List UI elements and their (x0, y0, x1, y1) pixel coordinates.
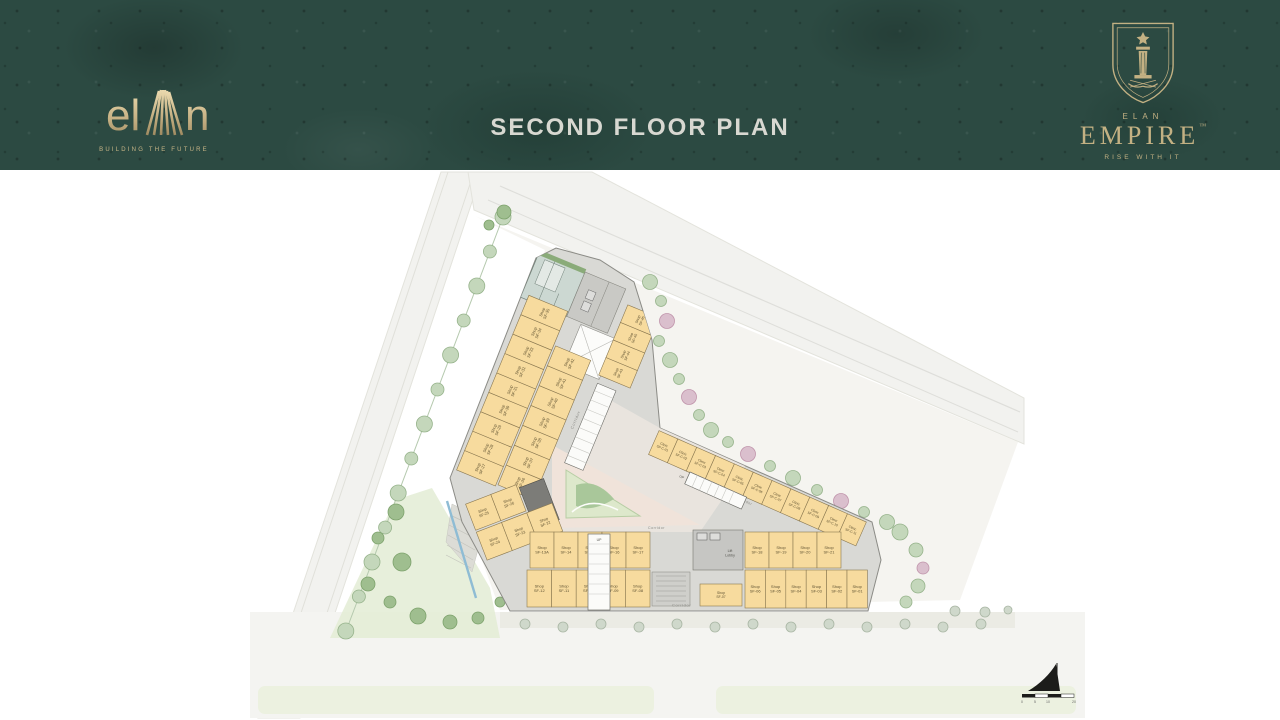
svg-text:ShopSF-02: ShopSF-02 (831, 584, 843, 594)
elan-tagline: BUILDING THE FUTURE (84, 147, 224, 153)
tree-icon (416, 416, 432, 432)
empire-eyebrow: ELAN (1068, 112, 1218, 121)
escalator: UP (588, 534, 610, 610)
lift-lobby-label: Lobby (725, 554, 735, 558)
tree-icon (372, 532, 384, 544)
tree-icon (710, 622, 720, 632)
svg-text:ShopSF-03: ShopSF-03 (811, 584, 823, 594)
tree-icon (900, 619, 910, 629)
tree-icon (980, 607, 990, 617)
shop-unit: ShopSF-19 (769, 532, 793, 568)
tree-icon (976, 619, 986, 629)
svg-text:ShopSF-14: ShopSF-14 (561, 545, 573, 555)
tree-icon (682, 390, 697, 405)
shop-unit: ShopSF-03 (806, 570, 826, 608)
shop-unit: ShopSF-06 (745, 570, 765, 608)
tree-icon (338, 623, 354, 639)
svg-text:ShopSF-06: ShopSF-06 (750, 584, 762, 594)
svg-text:ShopSF-12: ShopSF-12 (534, 584, 546, 594)
tree-icon (786, 622, 796, 632)
svg-text:ShopSF-17: ShopSF-17 (633, 545, 645, 555)
presentation-slide: el n BUILDING THE FUTURE SECOND FLOOR PL… (0, 0, 1280, 720)
tree-icon (859, 507, 870, 518)
tree-icon (892, 524, 908, 540)
corridor-label: Corridor (648, 526, 665, 530)
tree-icon (457, 314, 470, 327)
shop-unit: ShopSF-21 (817, 532, 841, 568)
svg-text:ShopSF-08: ShopSF-08 (632, 584, 644, 594)
tree-icon (390, 485, 406, 501)
svg-text:ShopSF-19: ShopSF-19 (776, 545, 788, 555)
tree-icon (812, 485, 823, 496)
tree-icon (741, 447, 756, 462)
tree-icon (643, 275, 658, 290)
tree-icon (765, 461, 776, 472)
svg-text:ShopSF-18: ShopSF-18 (752, 545, 764, 555)
tree-icon (704, 423, 719, 438)
lift-lobby-label: Lift (728, 549, 733, 553)
tree-icon (520, 619, 530, 629)
elan-empire-logo: ELAN EMPIRE™ RISE WITH IT (1068, 20, 1218, 161)
tree-icon (880, 515, 895, 530)
svg-text:ShopSF-05: ShopSF-05 (770, 584, 782, 594)
shop-unit: ShopSF-11 (552, 570, 577, 607)
tree-icon (472, 612, 484, 624)
tree-icon (443, 615, 457, 629)
tree-icon (674, 374, 685, 385)
tree-icon (384, 596, 396, 608)
tree-icon (405, 452, 418, 465)
tree-icon (656, 296, 667, 307)
shop-unit: ShopSF-12 (527, 570, 552, 607)
tree-icon (824, 619, 834, 629)
tree-icon (654, 336, 665, 347)
tree-icon (497, 205, 511, 219)
shop-unit: ShopSF-01 (847, 570, 867, 608)
tree-icon (786, 471, 801, 486)
floor-plan-area: Corridor ShopSF-27ShopSF-28ShopSF-29Shop… (0, 170, 1280, 720)
tree-icon (410, 608, 426, 624)
svg-text:ShopSF-20: ShopSF-20 (800, 545, 812, 555)
tree-icon (364, 554, 380, 570)
empire-crest-icon (1104, 20, 1182, 106)
floor-plan-canvas: Corridor ShopSF-27ShopSF-28ShopSF-29Shop… (0, 170, 1280, 720)
verge-strip (258, 686, 654, 714)
tree-icon (484, 220, 494, 230)
shop-unit: ShopSF-02 (827, 570, 847, 608)
tree-icon (660, 314, 675, 329)
shop-unit: ShopSF-14 (554, 532, 578, 568)
shop-unit: ShopSF-13A (530, 532, 554, 568)
lift-icon (697, 533, 707, 540)
tree-icon (361, 577, 375, 591)
lift-icon (710, 533, 720, 540)
svg-text:ShopSF-01: ShopSF-01 (852, 584, 864, 594)
tree-icon (379, 521, 392, 534)
svg-text:ShopSF-04: ShopSF-04 (791, 584, 803, 594)
tree-icon (862, 622, 872, 632)
header-banner: el n BUILDING THE FUTURE SECOND FLOOR PL… (0, 0, 1280, 170)
tree-icon (938, 622, 948, 632)
tree-icon (388, 504, 404, 520)
shop-unit: ShopSF-18 (745, 532, 769, 568)
tree-icon (900, 596, 912, 608)
svg-text:ShopSF-21: ShopSF-21 (824, 545, 836, 555)
tree-icon (393, 553, 411, 571)
tree-icon (596, 619, 606, 629)
scale-tick: 0 (1021, 700, 1023, 704)
scale-tick: 20 (1072, 700, 1076, 704)
trademark-symbol: ™ (1199, 122, 1206, 130)
tree-icon (634, 622, 644, 632)
tree-icon (431, 383, 444, 396)
tree-icon (443, 347, 459, 363)
tree-icon (694, 410, 705, 421)
corridor-label: Corridor (672, 603, 691, 608)
shop-unit: ShopSF-08 (625, 570, 650, 607)
tree-icon (917, 562, 929, 574)
empire-tagline: RISE WITH IT (1068, 154, 1218, 161)
shop-unit: ShopSF-17 (626, 532, 650, 568)
svg-text:ShopSF-11: ShopSF-11 (559, 584, 570, 594)
tree-icon (911, 579, 925, 593)
up-label: UP (597, 538, 603, 542)
tree-icon (748, 619, 758, 629)
tree-icon (558, 622, 568, 632)
shop-unit: ShopSF-07 (700, 584, 742, 606)
scale-tick: 5 (1034, 700, 1036, 704)
shop-unit: ShopSF-04 (786, 570, 806, 608)
tree-icon (1004, 606, 1012, 614)
tree-icon (723, 437, 734, 448)
tree-icon (909, 543, 923, 557)
tree-icon (950, 606, 960, 616)
svg-text:ShopSF-07: ShopSF-07 (716, 591, 725, 599)
tree-icon (663, 353, 678, 368)
shop-unit: ShopSF-20 (793, 532, 817, 568)
scale-tick: 10 (1046, 700, 1050, 704)
shop-unit: ShopSF-05 (765, 570, 785, 608)
empire-wordmark: EMPIRE™ (1068, 123, 1218, 149)
tree-icon (469, 278, 485, 294)
tree-icon (672, 619, 682, 629)
tree-icon (352, 590, 365, 603)
tree-icon (483, 245, 496, 258)
